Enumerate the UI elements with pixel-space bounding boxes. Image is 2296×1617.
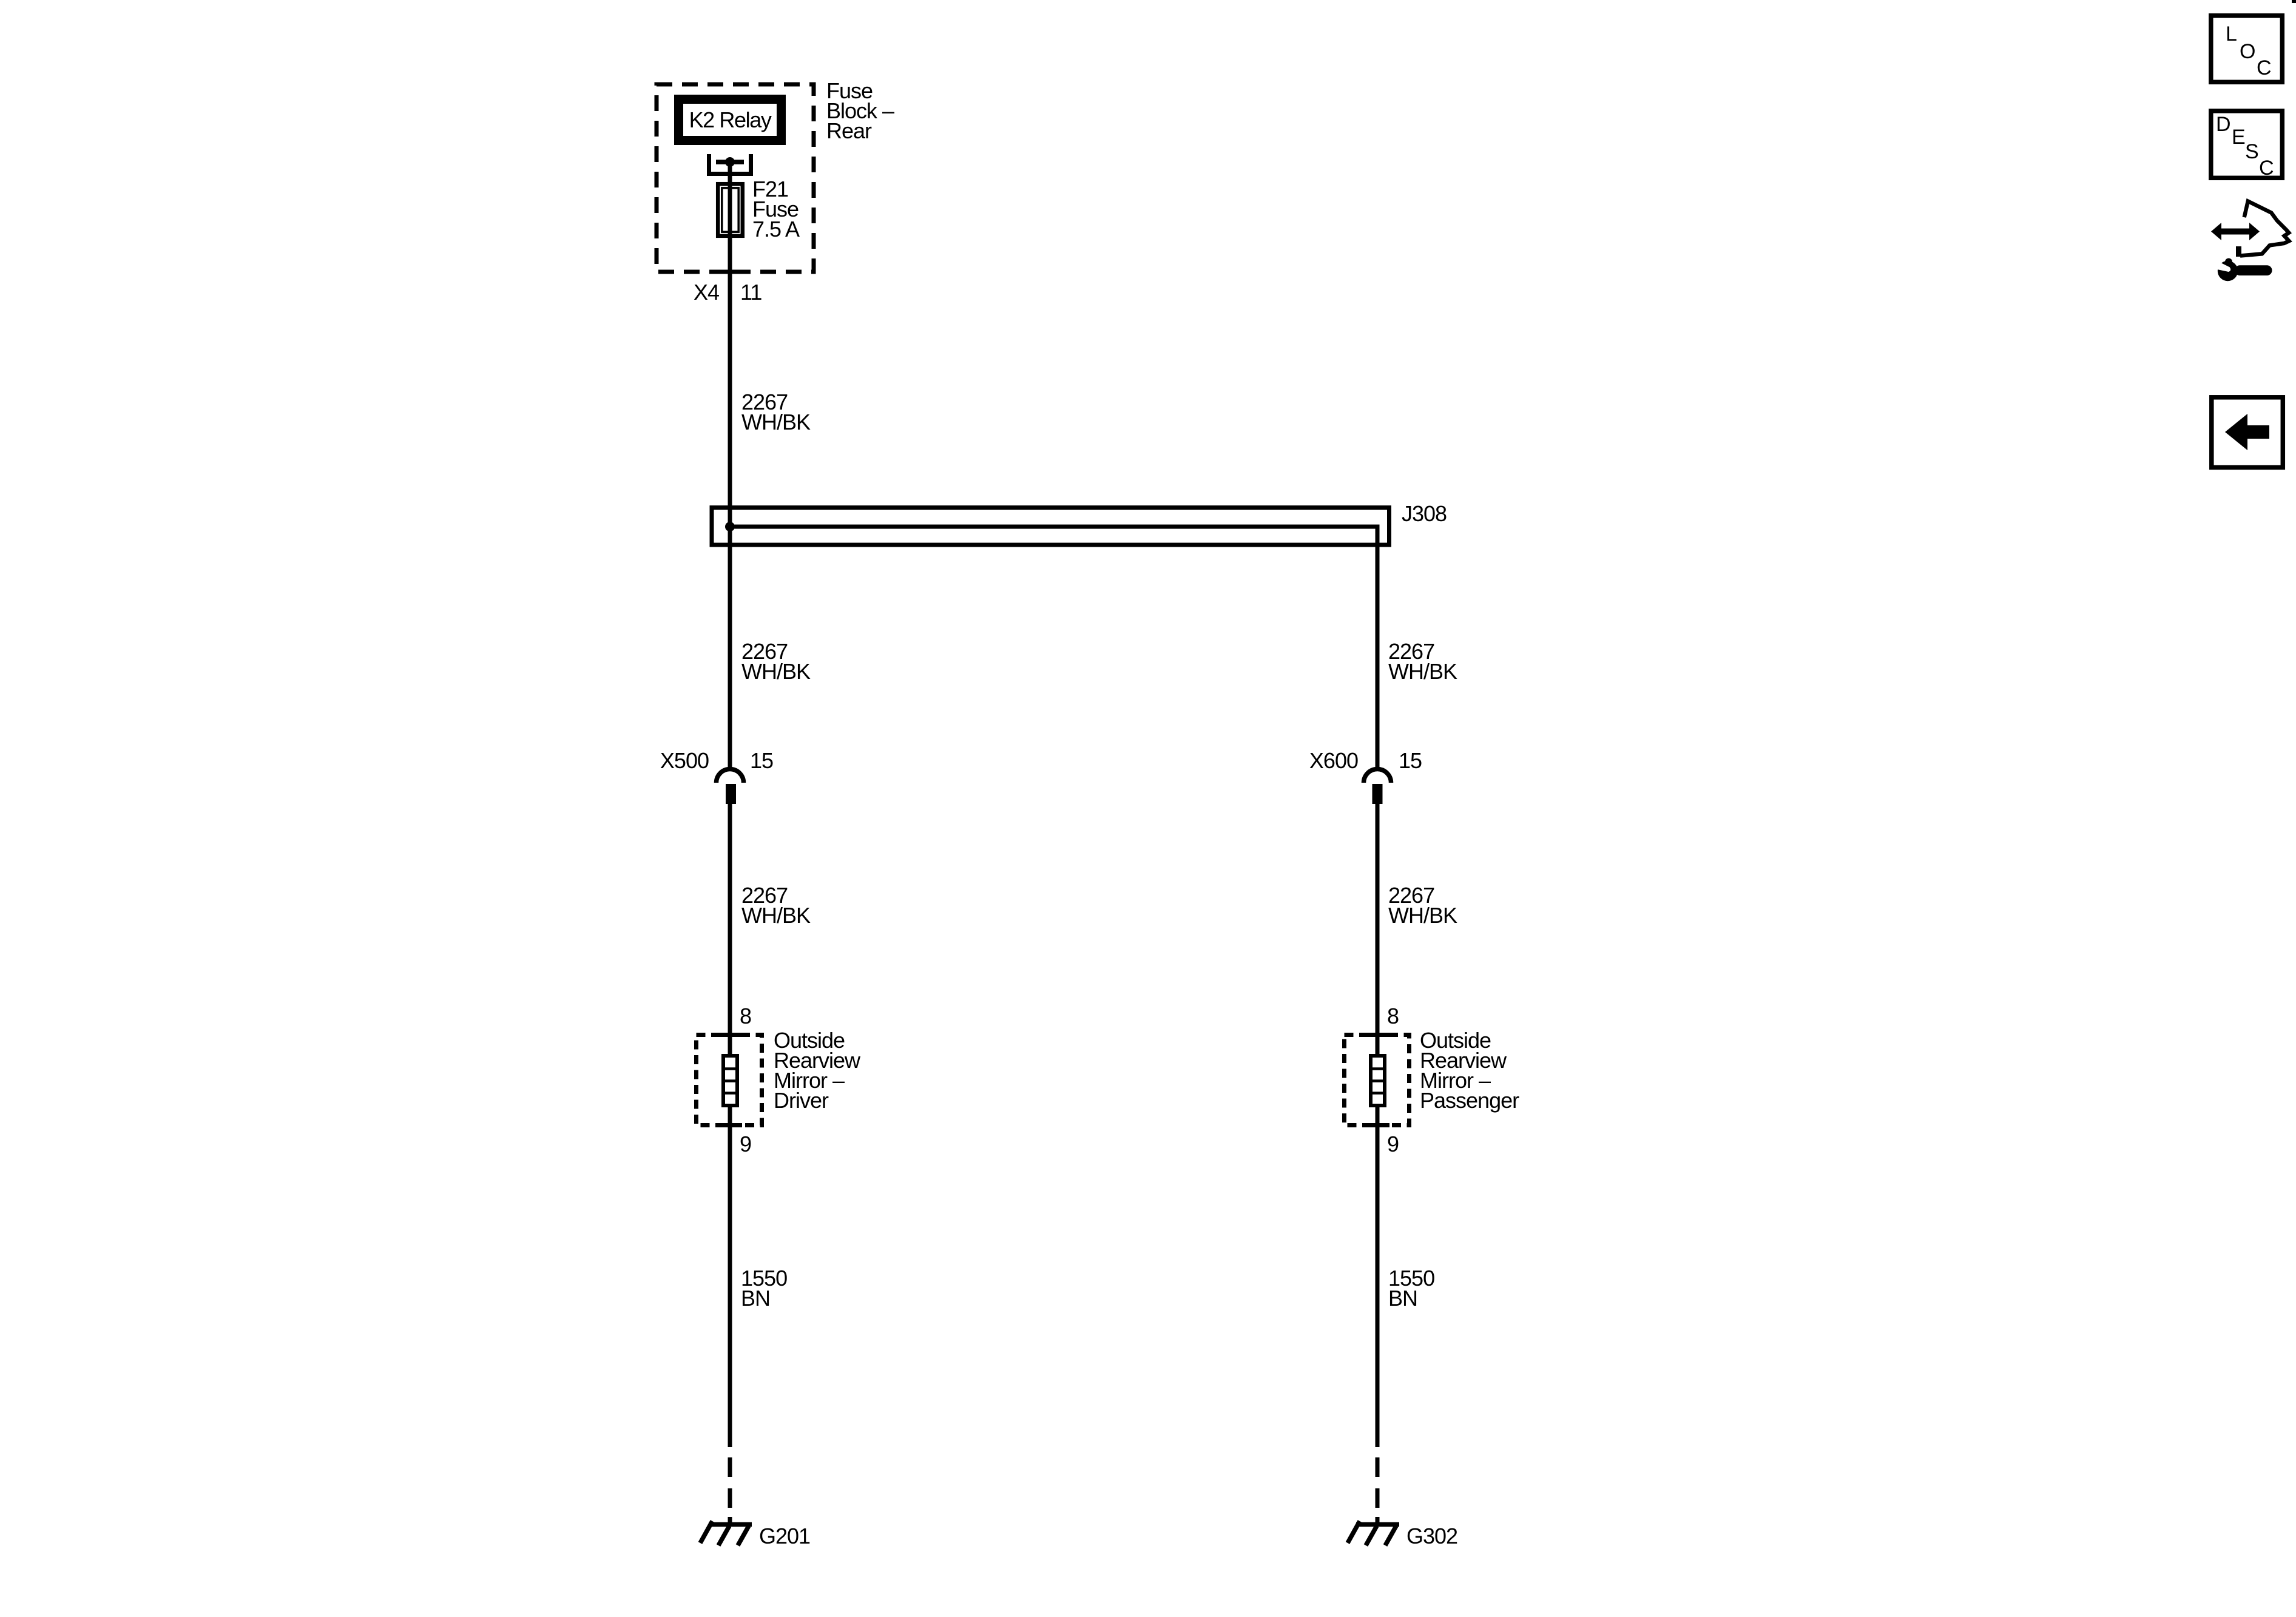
svg-text:G201: G201 (759, 1524, 810, 1548)
svg-text:WH/BK: WH/BK (741, 903, 811, 928)
svg-text:9: 9 (740, 1132, 751, 1156)
svg-text:7.5 A: 7.5 A (752, 217, 800, 241)
svg-text:O: O (2240, 40, 2255, 63)
svg-text:BN: BN (1388, 1286, 1417, 1311)
svg-text:WH/BK: WH/BK (1388, 659, 1457, 684)
svg-text:X600: X600 (1309, 748, 1358, 773)
svg-text:WH/BK: WH/BK (741, 659, 811, 684)
svg-text:15: 15 (750, 748, 773, 773)
svg-text:BN: BN (741, 1286, 770, 1311)
svg-text:WH/BK: WH/BK (741, 410, 811, 434)
svg-text:X500: X500 (660, 748, 709, 773)
svg-text:Passenger: Passenger (1420, 1088, 1519, 1113)
svg-text:K2 Relay: K2 Relay (689, 107, 772, 132)
svg-text:Driver: Driver (774, 1088, 829, 1113)
svg-text:X4: X4 (694, 280, 719, 305)
svg-text:E: E (2232, 126, 2246, 149)
svg-text:9: 9 (1387, 1132, 1399, 1156)
svg-text:8: 8 (1387, 1004, 1399, 1028)
svg-text:8: 8 (740, 1004, 751, 1028)
svg-text:D: D (2216, 113, 2231, 136)
svg-text:J308: J308 (1402, 501, 1447, 526)
svg-text:C: C (2257, 56, 2272, 79)
svg-text:11: 11 (740, 280, 761, 305)
svg-text:S: S (2245, 140, 2259, 163)
svg-text:L: L (2226, 22, 2237, 46)
svg-text:Rear: Rear (826, 118, 872, 143)
svg-text:G302: G302 (1406, 1524, 1457, 1548)
svg-text:C: C (2259, 157, 2274, 180)
svg-text:15: 15 (1399, 748, 1422, 773)
svg-text:WH/BK: WH/BK (1388, 903, 1457, 928)
